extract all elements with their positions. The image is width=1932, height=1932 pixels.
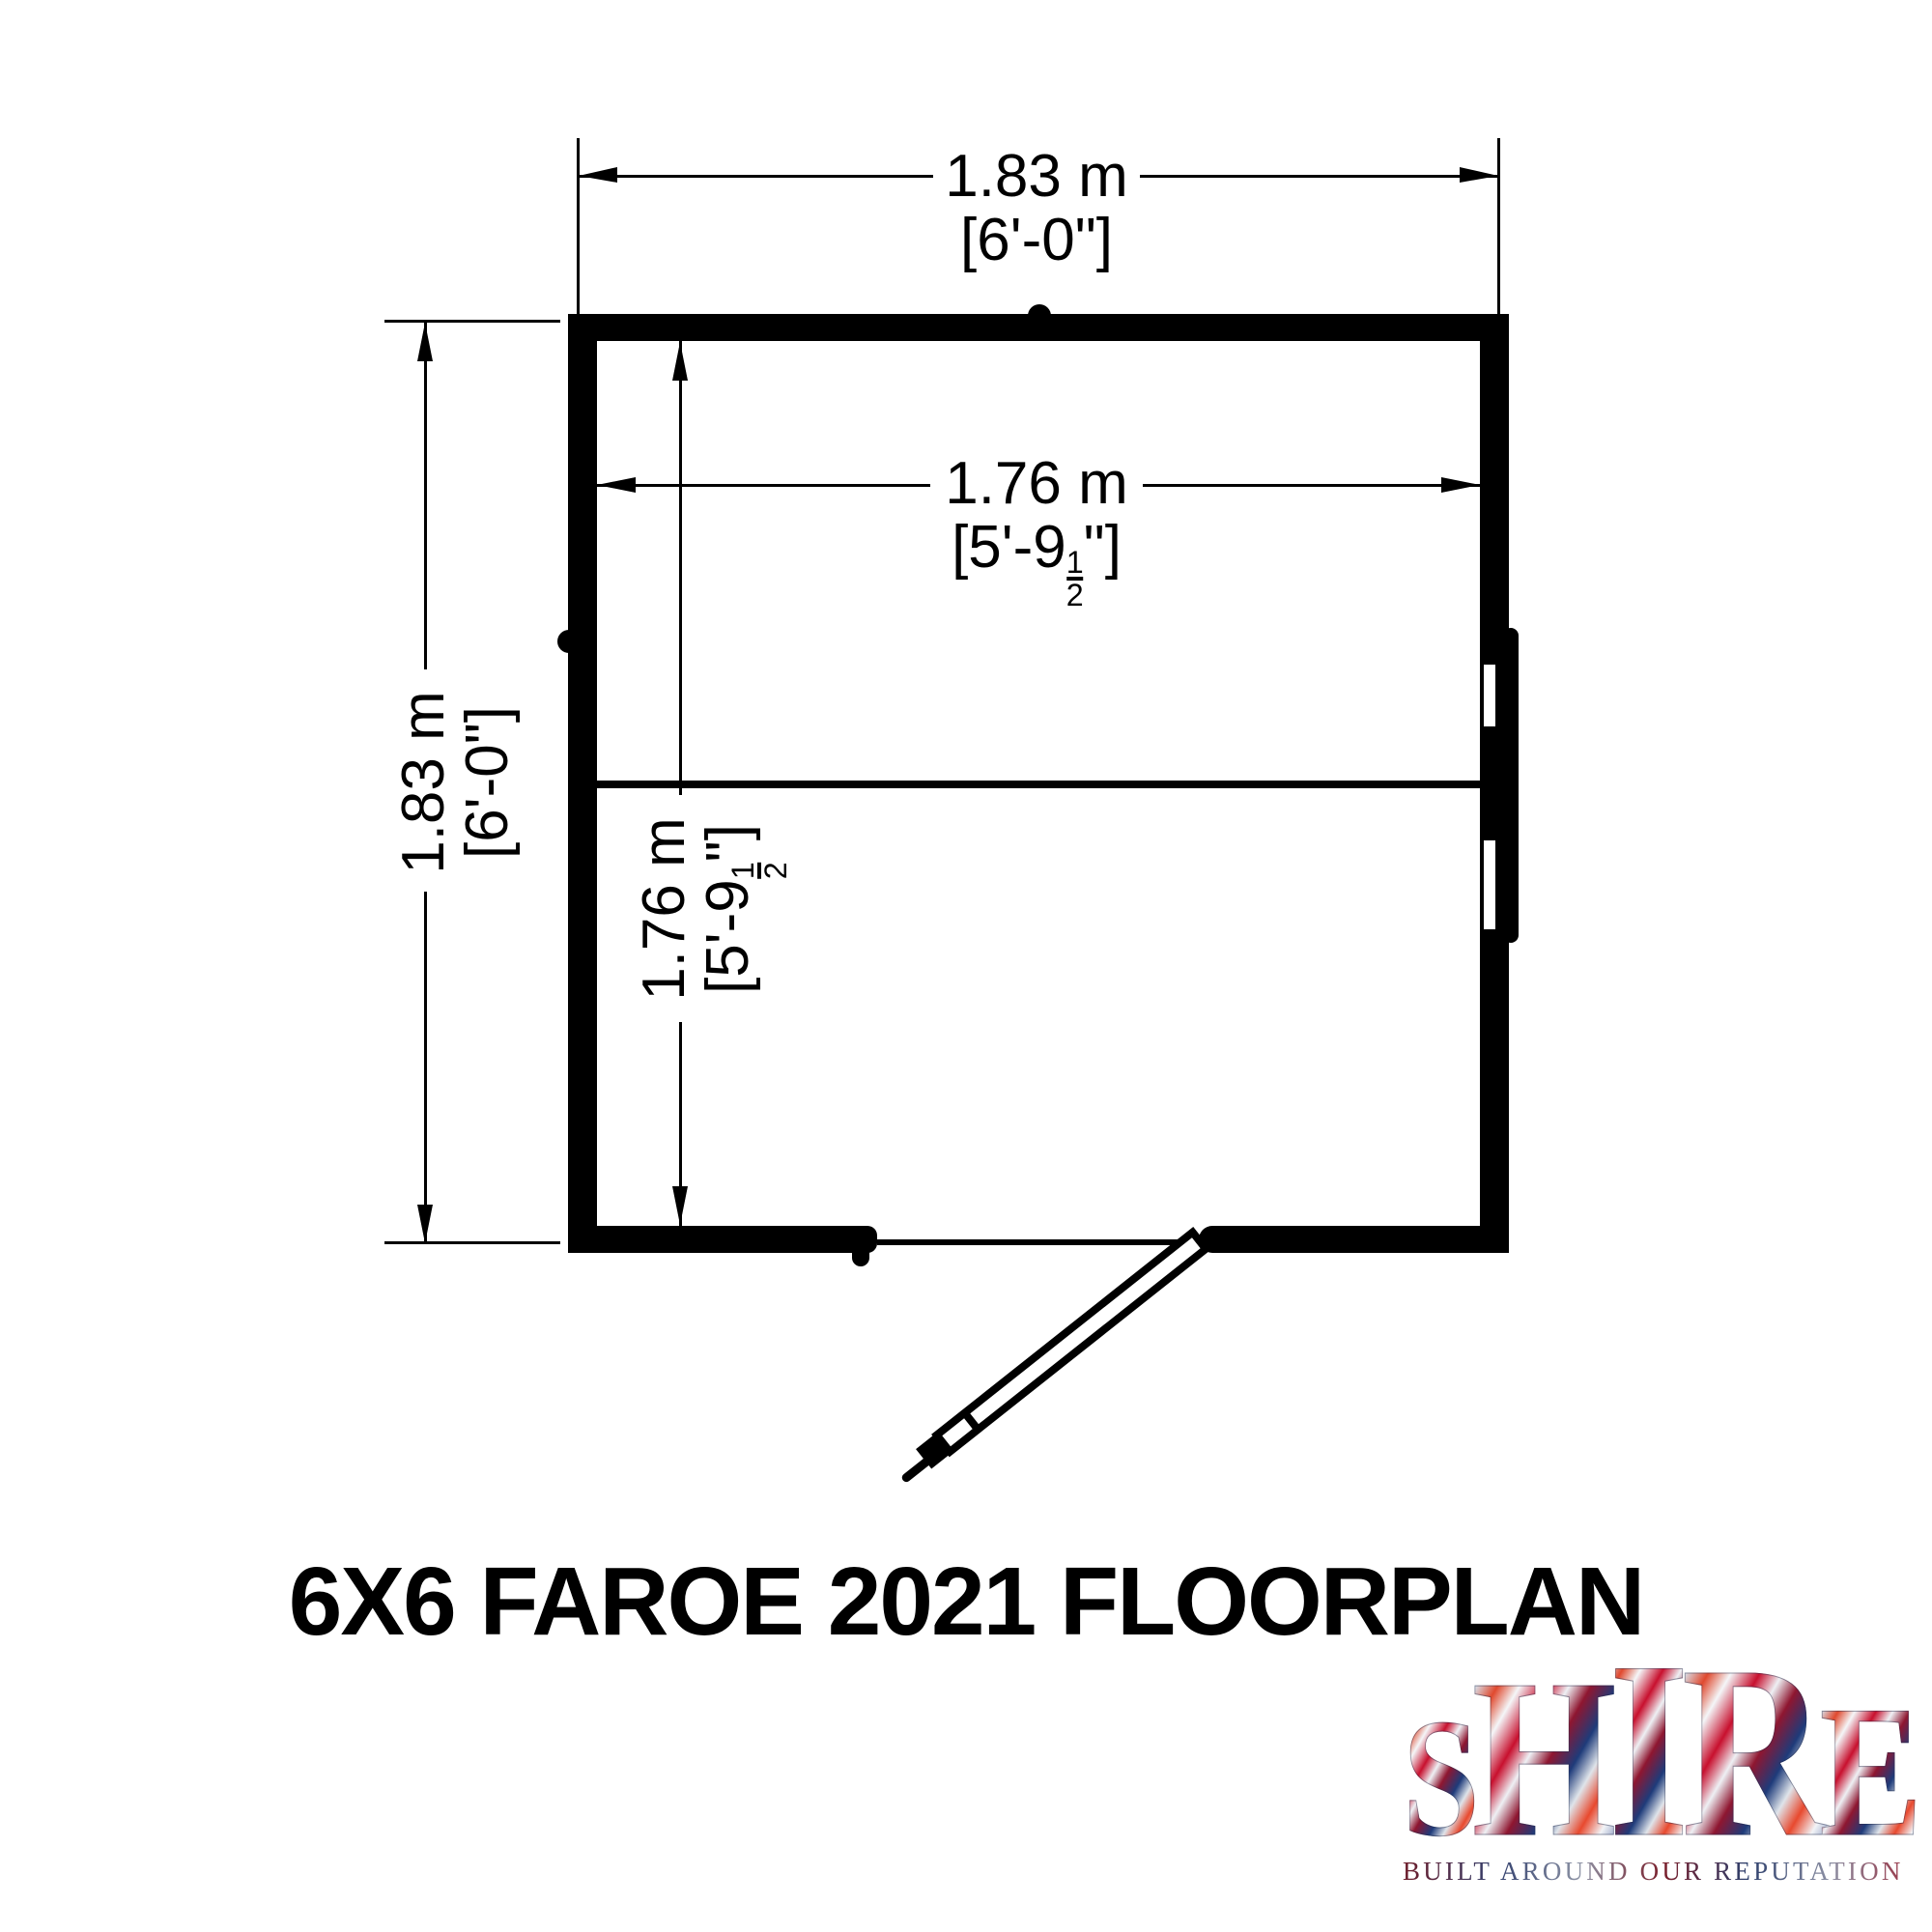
logo-letter-h: H <box>1472 1645 1617 1872</box>
logo-letter-e: E <box>1820 1678 1923 1866</box>
dim-overall-width-imperial: [6'-0"] <box>945 209 1128 272</box>
door-leaf <box>896 1231 1207 1485</box>
dim-overall-width-metric: 1.83 m <box>945 145 1128 209</box>
arrow-internal-width-right <box>1441 477 1480 493</box>
shire-logo: SHIRE <box>1403 1623 1915 1876</box>
fraction-half: 12 <box>728 862 791 879</box>
dim-overall-depth-imperial: [6'-0"] <box>456 691 520 874</box>
arrow-internal-width-left <box>597 477 636 493</box>
fraction-numerator: 1 <box>1066 548 1084 578</box>
dim-label-overall-width: 1.83 m [6'-0"] <box>945 145 1128 272</box>
arrow-left-bottom <box>417 1205 433 1243</box>
logo-letter-s: S <box>1403 1693 1480 1862</box>
dim-internal-depth-metric: 1.76 m <box>633 817 696 1001</box>
logo-letter-r: R <box>1682 1630 1828 1876</box>
fraction-denominator: 2 <box>1066 577 1084 611</box>
dim-label-internal-width: 1.76 m [5'-912"] <box>945 452 1128 611</box>
arrow-top-right <box>1460 167 1498 183</box>
dim-label-overall-depth: 1.83 m [6'-0"] <box>392 691 520 874</box>
logo-tagline: BUILT AROUND OUR REPUTATION <box>1403 1857 1924 1887</box>
arrow-top-left <box>579 167 617 183</box>
imp-suffix: "] <box>1084 514 1122 581</box>
dim-overall-depth-metric: 1.83 m <box>392 691 456 874</box>
door-leaf-panel <box>937 1233 1207 1452</box>
arrow-internal-depth-bottom <box>672 1186 688 1225</box>
door-leaf-tip-stub <box>906 1462 925 1477</box>
imp-prefix: [5'-9 <box>952 514 1066 581</box>
floorplan-page: 1.83 m [6'-0"] 1.83 m [6'-0"] 1.76 m [5'… <box>0 0 1932 1932</box>
imp-suffix: "] <box>695 824 761 862</box>
fraction-numerator: 1 <box>728 862 758 879</box>
imp-prefix: [5'-9 <box>695 879 761 994</box>
dim-label-internal-depth: 1.76 m [5'-912"] <box>633 817 791 1001</box>
fraction-denominator: 2 <box>757 862 791 879</box>
arrow-left-top <box>417 323 433 361</box>
fraction-half: 12 <box>1066 548 1084 611</box>
logo-letter-i: I <box>1608 1623 1690 1876</box>
arrow-internal-depth-top <box>672 342 688 381</box>
dim-internal-width-imperial: [5'-912"] <box>945 516 1128 611</box>
dim-internal-depth-imperial: [5'-912"] <box>696 817 791 1001</box>
dim-internal-width-metric: 1.76 m <box>945 452 1128 516</box>
